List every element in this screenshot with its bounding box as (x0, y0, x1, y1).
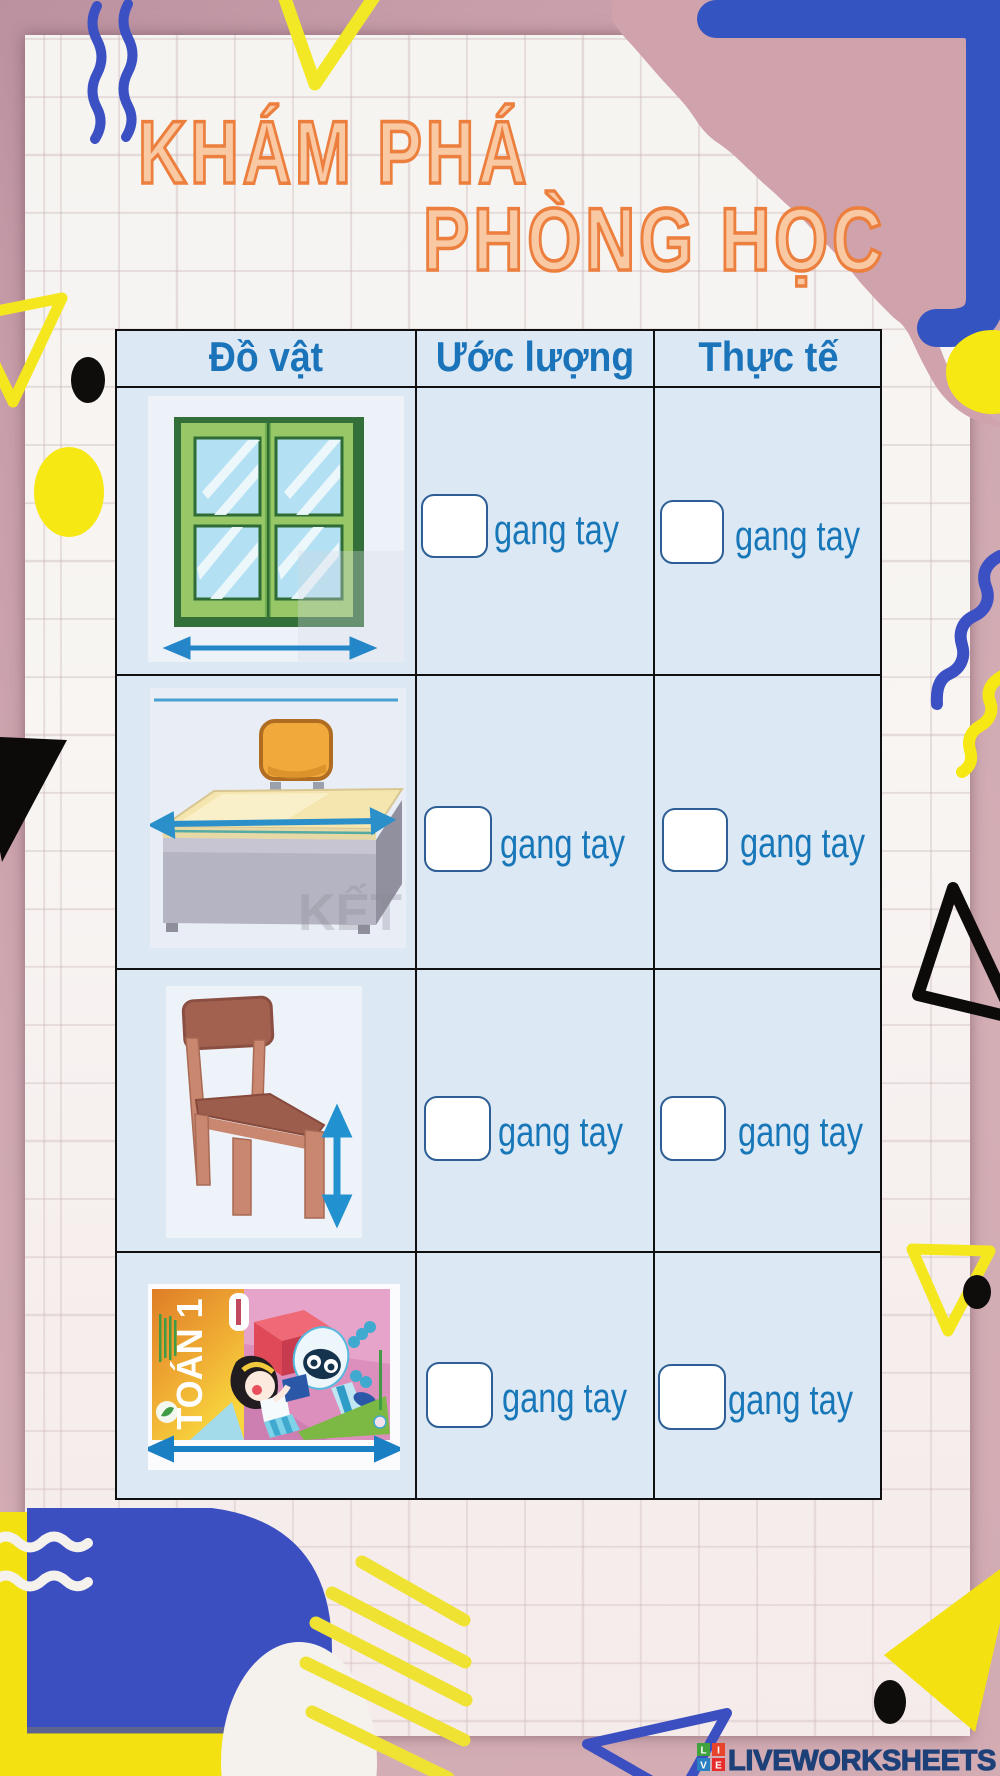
svg-text:L: L (700, 1746, 706, 1757)
svg-text:I: I (717, 1746, 720, 1757)
svg-text:TOÁN 1: TOÁN 1 (169, 1298, 210, 1429)
svg-text:E: E (715, 1761, 722, 1772)
svg-text:KẾT: KẾT (298, 883, 402, 942)
svg-text:V: V (700, 1761, 707, 1772)
